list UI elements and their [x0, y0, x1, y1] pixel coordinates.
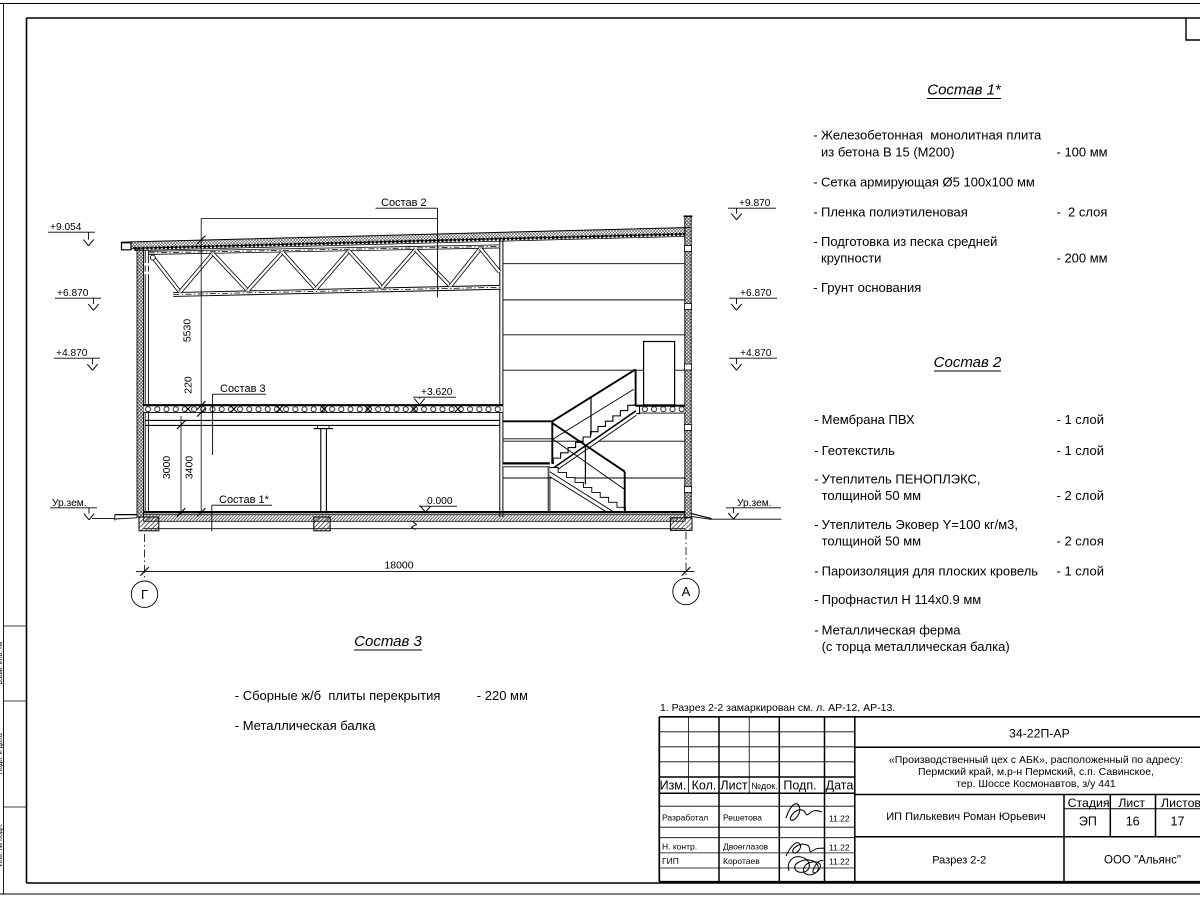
svg-text:18000: 18000 [384, 559, 413, 571]
svg-text:- 2 слоя: - 2 слоя [1057, 534, 1104, 549]
svg-text:ЭП: ЭП [1079, 815, 1097, 829]
svg-text:Утеплитель ПЕНОПЛЭКС,: Утеплитель ПЕНОПЛЭКС, [822, 472, 981, 487]
svg-text:-: - [813, 205, 817, 220]
svg-text:Металлическая балка: Металлическая балка [243, 718, 377, 733]
svg-text:Взам. инв. №: Взам. инв. № [0, 641, 4, 684]
svg-text:Металлическая ферма: Металлическая ферма [822, 623, 962, 638]
svg-text:Пленка полиэтиленовая: Пленка полиэтиленовая [821, 205, 968, 220]
svg-text:- 1 слой: - 1 слой [1057, 564, 1105, 579]
svg-text:34-22П-АР: 34-22П-АР [1009, 727, 1070, 741]
svg-text:Пермский край, м.р-н Пермский,: Пермский край, м.р-н Пермский, с.п. Сави… [918, 766, 1154, 778]
svg-text:3400: 3400 [184, 456, 196, 480]
svg-text:-: - [814, 623, 818, 638]
svg-text:-: - [813, 234, 817, 249]
svg-text:+9.870: +9.870 [739, 198, 771, 209]
svg-text:Дата: Дата [826, 779, 854, 793]
svg-text:11.22: 11.22 [829, 814, 850, 824]
svg-text:Разрез 2-2: Разрез 2-2 [932, 854, 986, 866]
svg-text:220: 220 [183, 376, 195, 394]
svg-text:-: - [235, 718, 239, 733]
svg-text:- 200 мм: - 200 мм [1057, 251, 1108, 266]
svg-text:+4.870: +4.870 [740, 348, 772, 359]
svg-text:(с торца металлическая балка): (с торца металлическая балка) [822, 639, 1010, 654]
svg-text:11.22: 11.22 [829, 857, 850, 867]
svg-text:толщиной 50 мм: толщиной 50 мм [822, 534, 922, 549]
svg-text:0.000: 0.000 [427, 496, 453, 507]
svg-text:Двоеглазов: Двоеглазов [723, 842, 769, 852]
svg-text:Подп.: Подп. [783, 779, 816, 793]
svg-text:Геотекстиль: Геотекстиль [822, 443, 896, 458]
svg-text:- 2 слоя: - 2 слоя [1057, 205, 1108, 220]
svg-text:Лист: Лист [720, 779, 747, 793]
svg-text:- 1 слой: - 1 слой [1057, 443, 1105, 458]
svg-text:- 100 мм: - 100 мм [1057, 145, 1108, 160]
svg-text:А: А [682, 584, 691, 599]
svg-text:Пароизоляция для плоских крове: Пароизоляция для плоских кровель [822, 564, 1039, 579]
svg-text:16: 16 [1126, 815, 1140, 829]
svg-text:Инв. № подл.: Инв. № подл. [0, 823, 4, 867]
svg-text:-: - [814, 472, 818, 487]
svg-text:№док.: №док. [751, 781, 777, 791]
svg-text:- 2 слой: - 2 слой [1057, 488, 1105, 503]
svg-text:Решетова: Решетова [723, 813, 762, 823]
svg-text:-: - [814, 592, 818, 607]
svg-text:Разработал: Разработал [662, 813, 708, 823]
svg-text:Состав 3: Состав 3 [220, 383, 266, 395]
svg-text:+6.870: +6.870 [740, 288, 772, 299]
svg-text:-: - [813, 175, 817, 190]
svg-text:Г: Г [141, 587, 148, 602]
svg-text:Состав 2: Состав 2 [934, 354, 1002, 371]
svg-text:Грунт основания: Грунт основания [821, 280, 921, 295]
svg-text:11.22: 11.22 [829, 843, 850, 853]
svg-text:5530: 5530 [182, 319, 194, 343]
svg-text:крупности: крупности [821, 251, 881, 266]
svg-text:Изм.: Изм. [660, 779, 687, 793]
svg-text:-: - [813, 128, 817, 143]
svg-text:Утеплитель Эковер Y=100 кг/м3,: Утеплитель Эковер Y=100 кг/м3, [822, 517, 1018, 532]
svg-text:+6.870: +6.870 [57, 288, 89, 299]
svg-text:ГИП: ГИП [662, 856, 679, 866]
svg-text:-: - [814, 517, 818, 532]
svg-text:Профнастил Н 114х0.9 мм: Профнастил Н 114х0.9 мм [822, 592, 982, 607]
svg-text:из бетона В 15 (М200): из бетона В 15 (М200) [821, 145, 955, 160]
svg-text:Состав 1*: Состав 1* [219, 494, 270, 506]
svg-text:- 220 мм: - 220 мм [477, 688, 528, 703]
svg-text:+3.620: +3.620 [421, 387, 453, 398]
svg-text:Листов: Листов [1161, 796, 1200, 810]
svg-text:+4.870: +4.870 [56, 348, 88, 359]
svg-text:тер. Шоссе Космонавтов, з/у 44: тер. Шоссе Космонавтов, з/у 441 [956, 778, 1116, 790]
svg-text:Мембрана ПВХ: Мембрана ПВХ [822, 412, 915, 427]
svg-text:Лист: Лист [1118, 796, 1145, 810]
svg-text:- 1 слой: - 1 слой [1057, 412, 1105, 427]
svg-text:Состав 1*: Состав 1* [927, 82, 1002, 99]
svg-text:Состав 2: Состав 2 [381, 197, 427, 209]
svg-text:Железобетонная монолитная пли: Железобетонная монолитная плита [821, 128, 1042, 143]
svg-text:+9.054: +9.054 [50, 222, 82, 233]
svg-text:Кол.: Кол. [692, 779, 717, 793]
svg-text:Сборные ж/б плиты перекрытия: Сборные ж/б плиты перекрытия [243, 688, 441, 703]
svg-text:-: - [814, 412, 818, 427]
svg-text:-: - [814, 443, 818, 458]
svg-text:«Производственный цех с АБК»,: «Производственный цех с АБК», расположен… [889, 754, 1183, 766]
svg-text:-: - [813, 280, 817, 295]
svg-text:1. Разрез 2-2 замаркирован см.: 1. Разрез 2-2 замаркирован см. л. АР-12,… [660, 702, 895, 714]
svg-text:17: 17 [1171, 815, 1185, 829]
svg-text:Подготовка из песка средней: Подготовка из песка средней [821, 234, 997, 249]
svg-text:ООО "Альянс": ООО "Альянс" [1104, 854, 1181, 866]
svg-text:толщиной 50 мм: толщиной 50 мм [822, 488, 922, 503]
svg-text:Сетка армирующая Ø5 100х100 мм: Сетка армирующая Ø5 100х100 мм [821, 175, 1035, 190]
svg-text:-: - [814, 564, 818, 579]
svg-text:-: - [235, 688, 239, 703]
svg-text:Коротаев: Коротаев [723, 856, 760, 866]
svg-text:3000: 3000 [161, 456, 173, 480]
svg-text:Стадия: Стадия [1068, 796, 1110, 810]
svg-text:ИП Пилькевич Роман Юрьевич: ИП Пилькевич Роман Юрьевич [886, 811, 1045, 823]
svg-text:Состав 3: Состав 3 [354, 633, 422, 650]
svg-text:Н. контр.: Н. контр. [662, 842, 697, 852]
svg-text:Подп. и дата: Подп. и дата [0, 733, 4, 774]
